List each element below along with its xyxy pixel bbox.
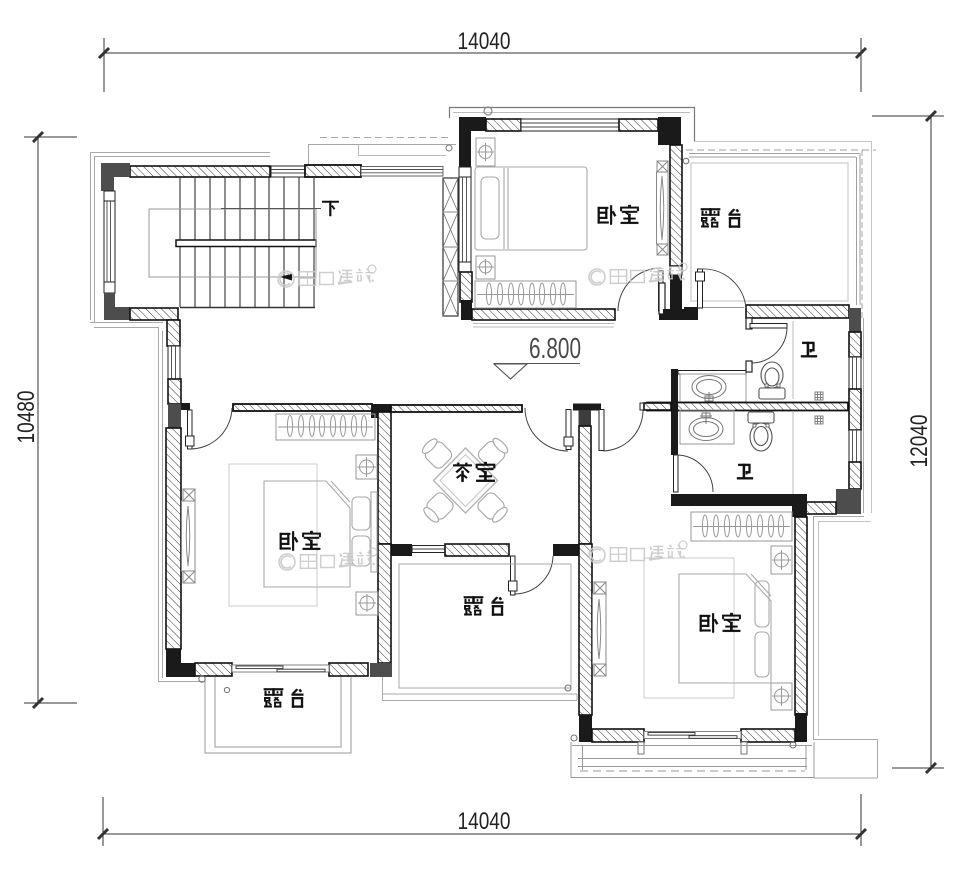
svg-text:14040: 14040 — [458, 808, 511, 835]
svg-text:14040: 14040 — [458, 28, 511, 55]
svg-text:12040: 12040 — [906, 415, 933, 468]
svg-text:6.800: 6.800 — [529, 333, 581, 365]
svg-text:10480: 10480 — [13, 391, 40, 444]
